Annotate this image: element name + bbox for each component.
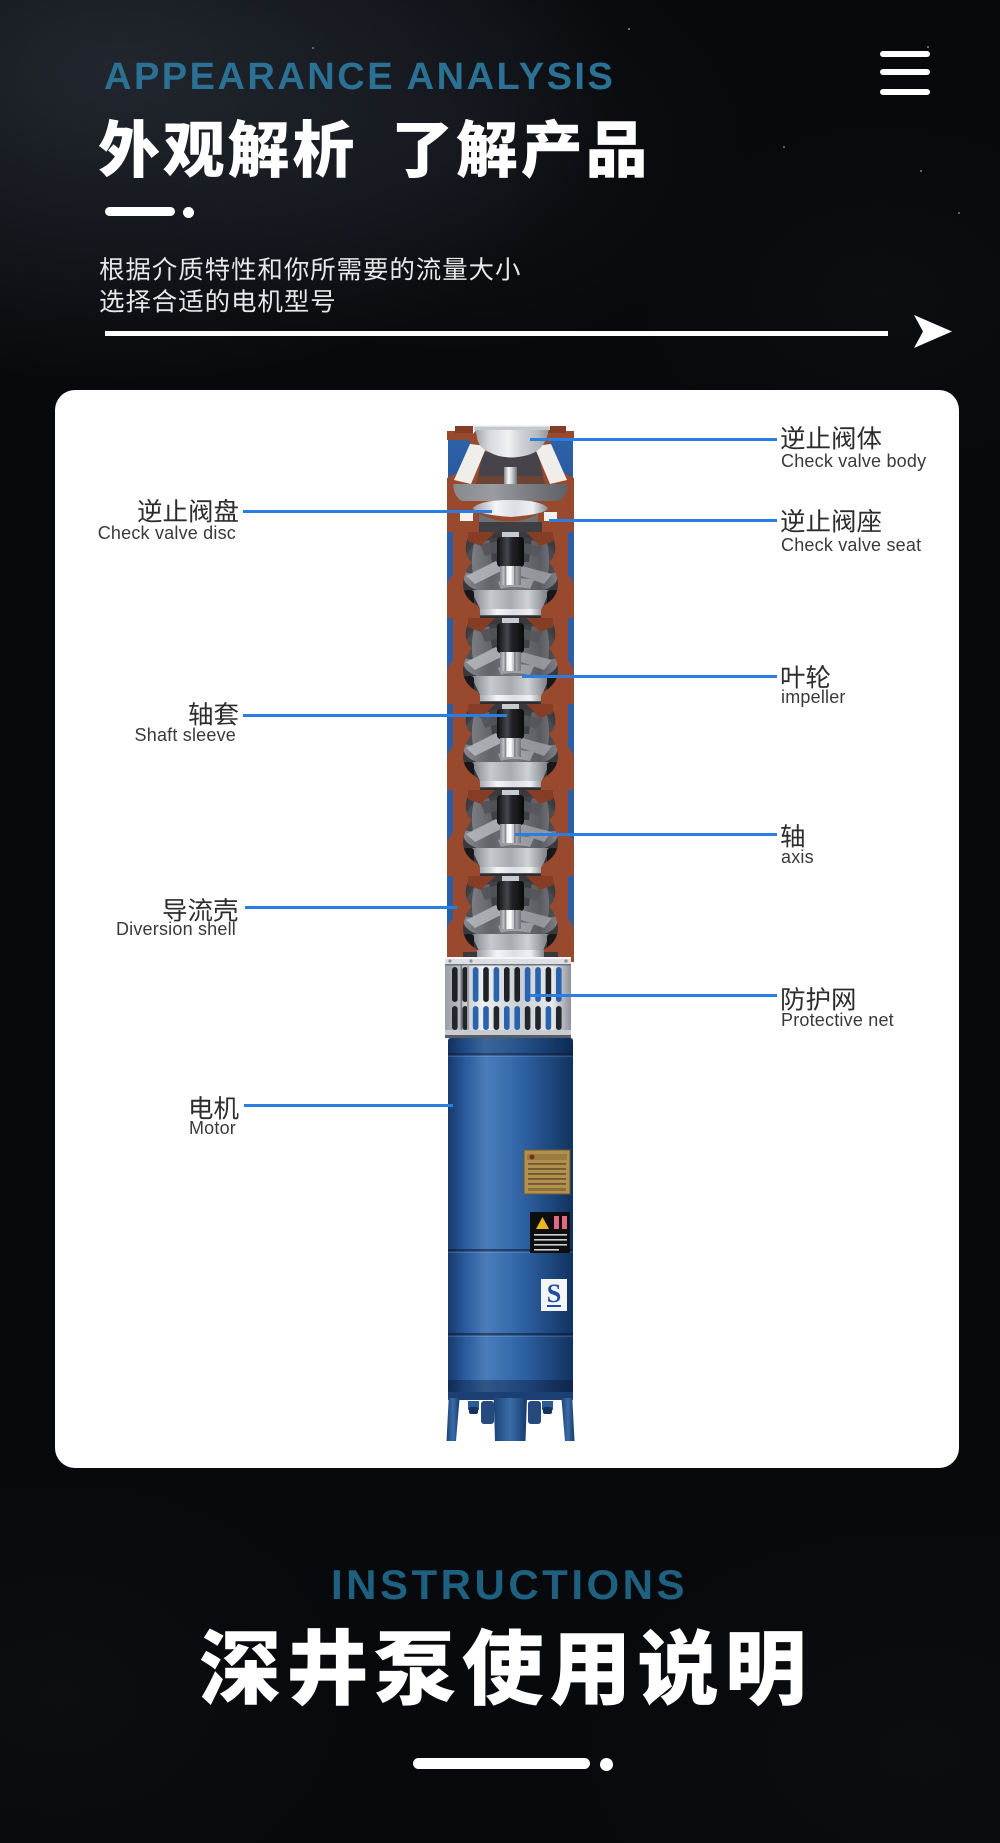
svg-text:S: S — [547, 1279, 561, 1308]
